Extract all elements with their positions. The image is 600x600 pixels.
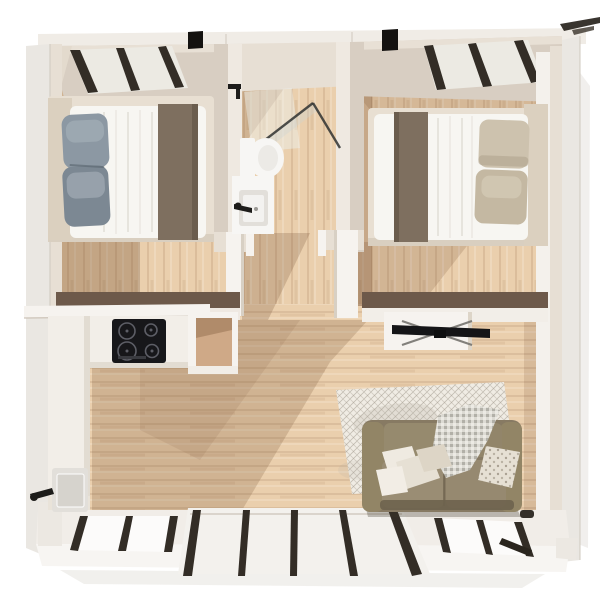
vanity-faucet-knob (235, 203, 242, 210)
bed-right (368, 104, 548, 246)
bed-right-pillows (474, 119, 530, 225)
column-cap-left (188, 31, 203, 49)
pillow-beige-upper-shade (478, 155, 528, 167)
patio-door-mullion-2 (290, 510, 298, 576)
pillow-blue-upper-highlight (65, 119, 104, 143)
vanity-drain (254, 207, 258, 211)
bedroom-right-door-frame (334, 230, 358, 318)
wall-right-outer (562, 36, 580, 562)
cooktop-control-strip (118, 356, 146, 359)
bed-left-pillows (59, 113, 113, 227)
wall-b2-bottom-cap (362, 292, 548, 308)
sofa-front-edge (380, 500, 514, 510)
corner-post-bottom-right (556, 538, 578, 560)
bed-right-throw-shade (394, 112, 399, 242)
wall-left-outer (26, 44, 50, 558)
door-hardware (520, 510, 534, 518)
floor-plan-svg (0, 0, 600, 600)
wall-bath-b2-face (350, 42, 364, 252)
kitchen-sink-basin (57, 474, 84, 507)
bed-left-throw-shade (192, 104, 198, 240)
bedroom-right-door-frame-shade (334, 230, 337, 318)
floor-plan-render (0, 0, 600, 600)
bed-right-throw-blanket (394, 112, 428, 242)
pillow-beige-lower-highlight (481, 175, 522, 198)
cooktop-dot-2 (150, 329, 153, 332)
pillow-blue-lower-highlight (66, 171, 105, 199)
wall-right-mid (550, 46, 562, 560)
shower-pipe (236, 88, 240, 99)
bedroom-left-door-frame-shade (241, 232, 244, 316)
tv-mount (434, 330, 446, 338)
sofa (362, 404, 522, 517)
floor-shadow-right-wall (524, 320, 536, 515)
cooktop-dot-4 (151, 350, 154, 353)
bed-left (48, 96, 214, 242)
bathroom-door-post-right (318, 230, 326, 256)
wall-top-face-bathroom (226, 42, 352, 92)
sofa-arm-left (362, 422, 384, 512)
wall-b1-bath-face (214, 44, 228, 252)
column-cap-right (382, 29, 398, 51)
cooktop-dot-1 (126, 330, 129, 333)
cooktop-dot-3 (126, 350, 129, 353)
toilet-seat (258, 145, 278, 171)
kitchen-cabinet-lip (188, 366, 238, 374)
kitchen-faucet-knob (30, 493, 38, 501)
